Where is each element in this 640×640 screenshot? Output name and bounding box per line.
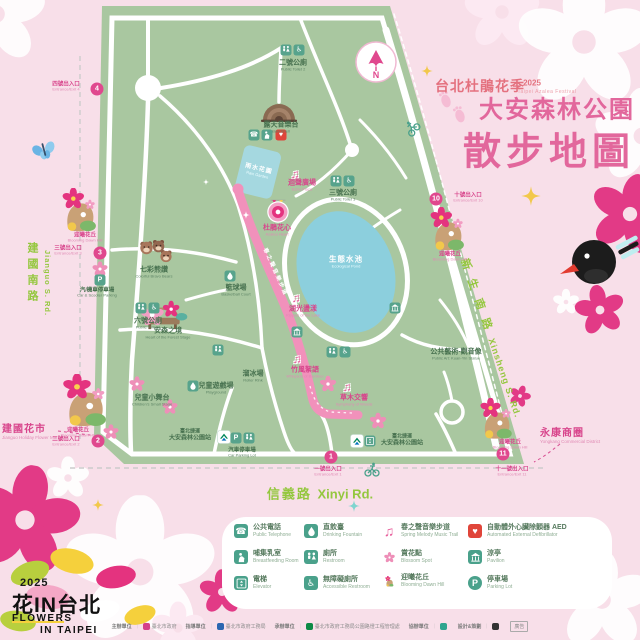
ad-mark: 廣告 — [510, 621, 528, 632]
logo-title-en-line1: FLOWERS — [12, 613, 73, 624]
station-echo-plaza-label: 迴聲廣場Echo Plaza — [288, 180, 316, 193]
credit-design: 設計&策劃｜ — [458, 623, 502, 630]
pavilion-icon — [390, 303, 401, 314]
music-note-icon: ♫ — [382, 524, 396, 538]
legend-item-blossom-spot: 賞花點Blossom Spot — [382, 550, 432, 564]
logo-title-en-line2: IN TAIPEI — [40, 625, 98, 636]
mrt-station-east-label: 臺北捷運大安森林公園站 — [381, 435, 423, 448]
playground-label: 兒童遊戲場Playground — [199, 383, 234, 396]
cyclist-icon-south — [365, 463, 379, 476]
credit-coorganizer: 協辦單位｜ — [409, 623, 449, 630]
pavilion-icon — [468, 550, 482, 564]
restroom-icon — [327, 347, 338, 358]
legend-item-accessible-restroom: ♿ 無障礙廁所Accessible Restroom — [304, 576, 370, 590]
wheelchair-icon: ♿ — [340, 347, 351, 358]
legend-item-aed: ♥ 自動體外心臟除顫器 AEDAutomated External Defibr… — [468, 524, 567, 538]
bandshell-label: 露天音樂台Bandshell — [264, 122, 299, 135]
public-telephone-icon: ☎ — [249, 130, 260, 141]
park-name-title: 大安森林公園 — [479, 90, 635, 125]
public-telephone-icon: ☎ — [234, 524, 248, 538]
entrance-10-badge: 10 — [430, 193, 443, 206]
parking-icon: P — [95, 275, 106, 286]
credit-organizer: 主辦單位｜ 臺北市政府 — [112, 623, 177, 630]
entrance-3-badge: 3 — [94, 247, 107, 260]
flower-hill-icon-nw — [62, 187, 96, 231]
coorganizer-logo — [440, 623, 447, 630]
parking-icon: P — [231, 433, 242, 444]
road-label-jianguo-en: Jianguo S. Rd. — [43, 250, 52, 316]
station-lake-label: 湖光盪漾Ripples of the Lake — [286, 306, 320, 319]
pond-label: 生態水池Ecological Pond — [329, 255, 363, 268]
legend-item-restroom: 廁所Restroom — [304, 550, 345, 564]
wheelchair-icon: ♿ — [304, 576, 318, 590]
azalea-festival-walking-map-poster: { "header": { "festival_zh": "台北杜鵑花季", "… — [0, 0, 640, 640]
music-note-icon: ♫ — [293, 352, 302, 366]
yongkang-district-label: 永康商圈 Yongkang Commercial District — [540, 424, 602, 444]
drinking-fountain-icon — [188, 381, 199, 392]
restroom-icon — [331, 176, 342, 187]
entrance-11-label: 十一號出入口Entrance/Exit 11 — [495, 467, 528, 478]
station-woods-label: 草木交響Symphony of Woods — [336, 395, 373, 408]
basketball-label: 籃球場Basketball Court — [221, 285, 250, 298]
entrance-11-badge: 11 — [497, 448, 510, 461]
legend-item-music-trail: ♫ 春之聲音樂步道Spring Melody Music Trail — [382, 524, 458, 538]
organizer-logo — [143, 623, 150, 630]
station-bamboo-label: 竹風絮語Whispers of Bamboo — [286, 367, 323, 380]
legend-item-flower-hill: 迎曦花丘Blooming Dawn Hill — [382, 574, 444, 588]
mrt-logo-west — [218, 431, 231, 444]
car-parking-label: 汽車停車場Car Parking Lot — [228, 448, 256, 459]
blossom-flower-icon — [382, 550, 396, 564]
toilet6-label: 六號公廁Public Toilet 6 — [134, 318, 162, 331]
entrance-4-label: 四號出入口Entrance/Exit 4 — [52, 82, 80, 93]
festival-year: 2025 — [523, 79, 541, 88]
toilet2-label: 二號公廁Public Toilet 2 — [279, 60, 307, 73]
entrance-3-label: 三號出入口Entrance/Exit 3 — [54, 246, 82, 257]
wheelchair-icon: ♿ — [294, 45, 305, 56]
flower-hill-label-ne: 迎曦花丘Blooming Dawn Hill — [433, 252, 468, 263]
drinking-fountain-icon — [225, 271, 236, 282]
restroom-icon — [304, 550, 318, 564]
breastfeeding-icon — [234, 550, 248, 564]
restroom-icon — [244, 433, 255, 444]
legend-item-elevator: 電梯Elevator — [234, 576, 271, 590]
entrance-4-badge: 4 — [91, 83, 104, 96]
mrt-station-west-label: 臺北捷運大安森林公園站 — [169, 430, 211, 443]
flower-hill-label-nw: 迎曦花丘Blooming Dawn Hill — [68, 233, 103, 244]
legend-item-breastfeeding: 哺集乳室Breastfeeding Room — [234, 550, 299, 564]
toilet3-label: 三號公廁Public Toilet 3 — [329, 190, 357, 203]
small-stage-label: 兒童小舞台Children's Small Stage — [132, 395, 172, 408]
wheelchair-icon: ♿ — [344, 176, 355, 187]
logo-year: 2025 — [20, 577, 48, 589]
road-label-jianguo-zh: 建國南路 — [24, 242, 40, 306]
elevator-icon — [234, 576, 248, 590]
credit-executor: 承辦單位｜ 臺北市政府工務局公園路燈工程管理處 — [275, 623, 400, 630]
music-note-icon: ♫ — [343, 380, 352, 394]
aed-icon: ♥ — [468, 524, 482, 538]
entrance-1-badge: 1 — [325, 451, 338, 464]
pavilion-icon — [292, 327, 303, 338]
road-label-xinyi: 信義路 Xinyi Rd. — [267, 484, 373, 503]
mascot-bird — [560, 235, 640, 284]
entrance-2-badge: 2 — [92, 435, 105, 448]
guanyin-label: 公共藝術-觀音像Public Art: Kuan-Yin Statue — [430, 349, 481, 362]
legend-item-parking: P 停車場Parking Lot — [468, 576, 512, 590]
credit-advisor: 指導單位｜ 臺北市政府工務局 — [186, 623, 266, 630]
legend-item-pavilion: 涼亭Pavilion — [468, 550, 505, 564]
music-note-icon: ♫ — [292, 291, 301, 305]
legend-item-public-telephone: ☎ 公共電話Public Telephone — [234, 524, 291, 538]
drinking-fountain-icon — [304, 524, 318, 538]
entrance-1-label: 一號出入口Entrance/Exit 1 — [314, 467, 342, 478]
butterfly-icon — [29, 138, 60, 163]
advisor-logo — [217, 623, 224, 630]
flower-hill-label-sw: 迎曦花丘Blooming Dawn Hill — [61, 428, 96, 439]
parking-icon: P — [468, 576, 482, 590]
elevator-icon — [365, 436, 376, 447]
entrance-10-label: 十號出入口Entrance/Exit 10 — [453, 193, 482, 204]
restroom-icon — [281, 45, 292, 56]
compass-north-label: N — [373, 65, 380, 83]
design-logo — [492, 623, 499, 630]
flower-hill-icon — [382, 574, 396, 588]
map-title: 散步地圖 — [463, 121, 635, 176]
mrt-logo-east — [351, 435, 364, 448]
bear-garden-label: 七彩熊讚Colorful Bravo Bears — [136, 267, 173, 280]
restroom-icon — [136, 303, 147, 314]
executor-logo — [306, 623, 313, 630]
scooter-parking-label: 汽/機車停車場Car & Scooter Parking — [77, 288, 117, 299]
restroom-icon — [213, 345, 224, 356]
azalea-heart-label: 杜鵑花心Azalea Heart — [263, 225, 291, 238]
wheelchair-icon: ♿ — [149, 303, 160, 314]
roller-rink-label: 溜冰場Roller Rink — [243, 371, 264, 384]
legend-item-drinking-fountain: 直飲臺Drinking Fountain — [304, 524, 362, 538]
